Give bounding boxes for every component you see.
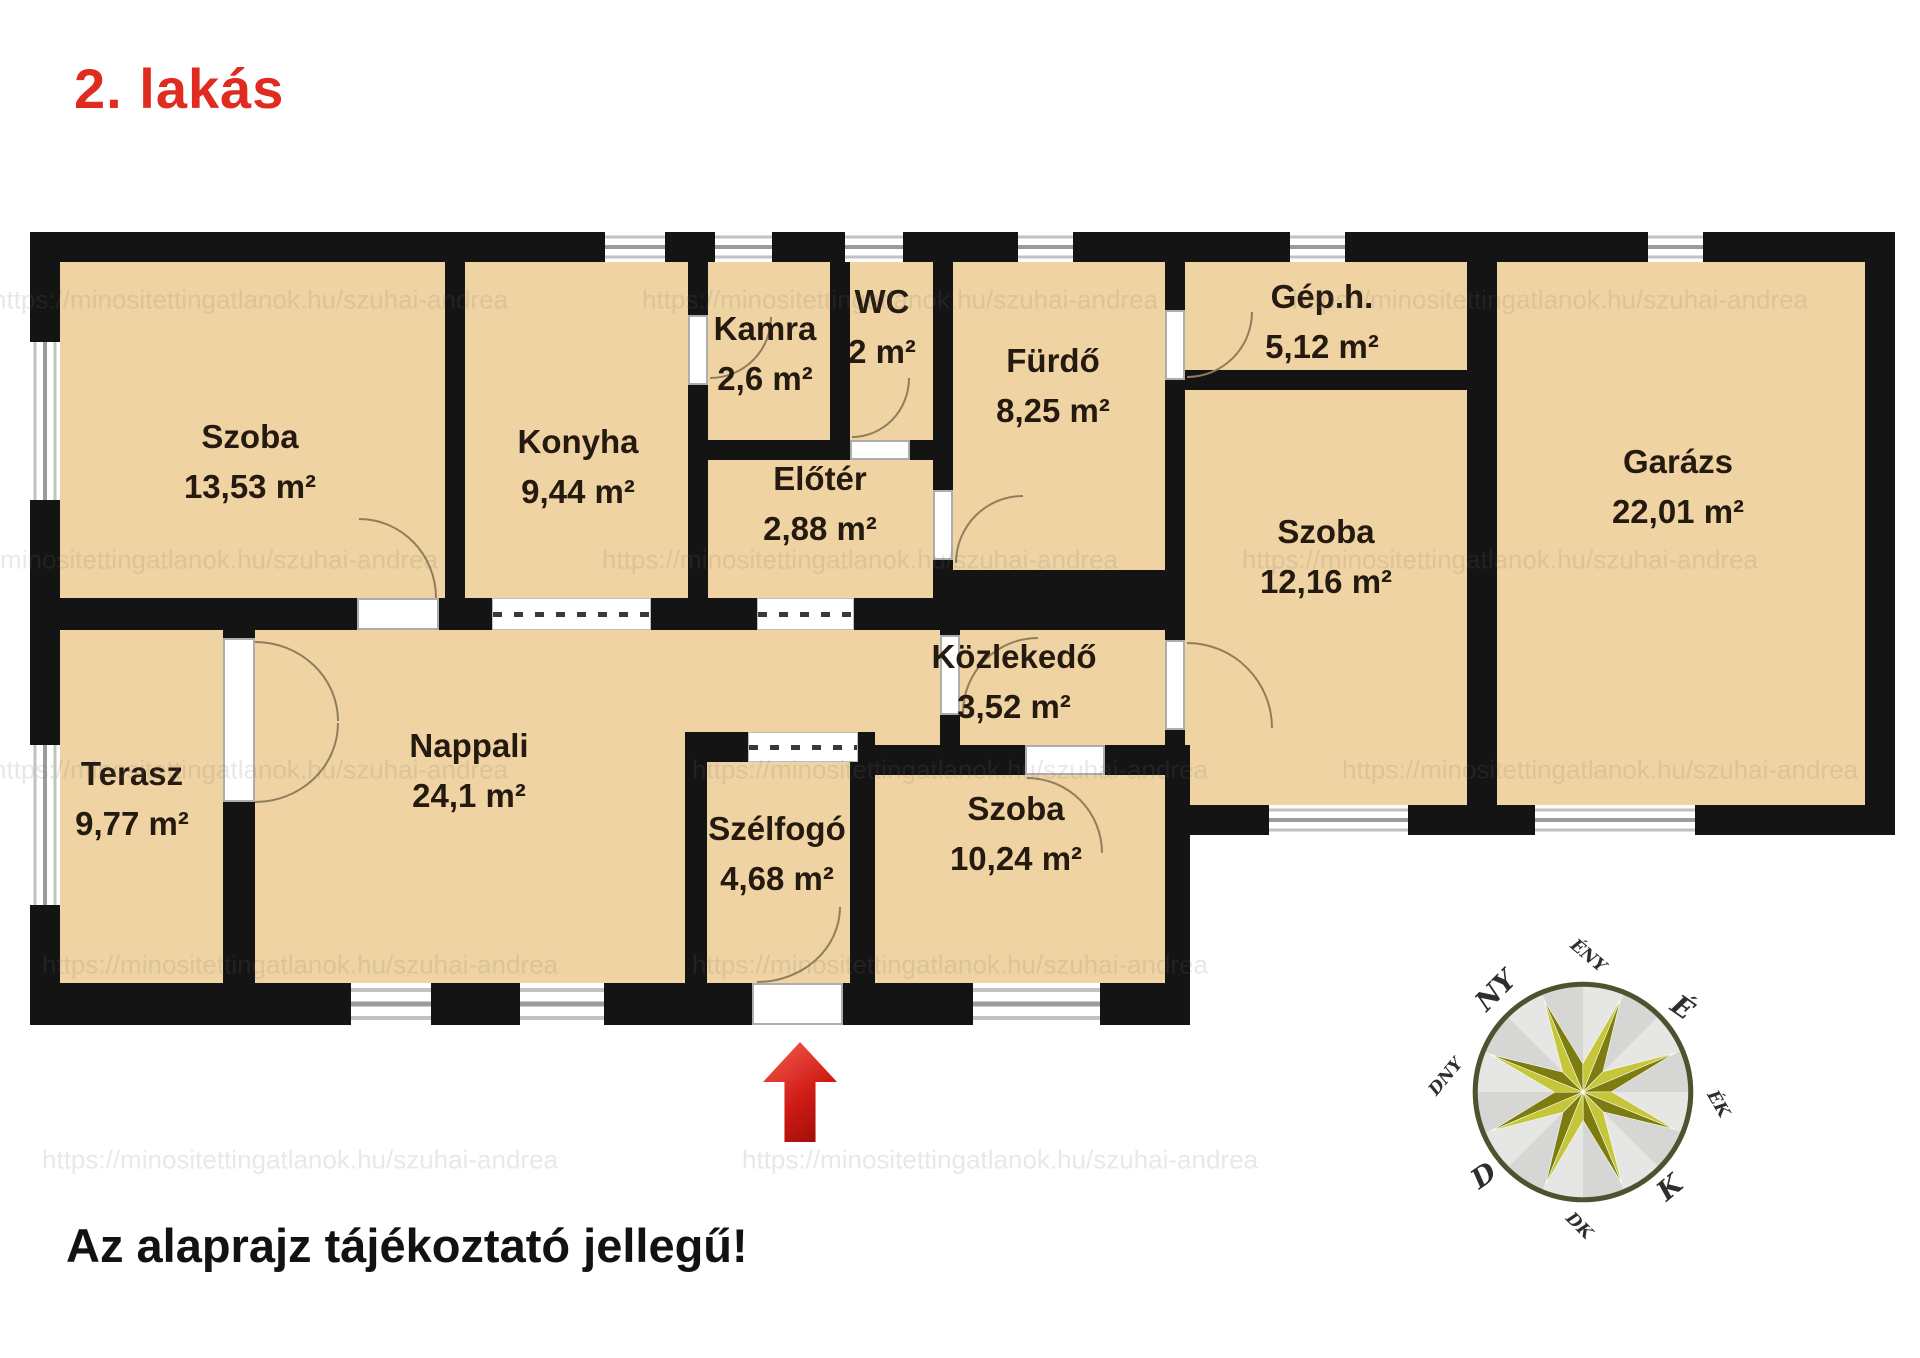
door-frame xyxy=(752,983,843,1025)
room-area: 4,68 m² xyxy=(708,854,846,904)
room-name: Közlekedő xyxy=(931,632,1096,682)
wall xyxy=(1467,262,1497,805)
dashed-window xyxy=(492,598,651,630)
room-name: Garázs xyxy=(1612,437,1744,487)
watermark-text: https://minositettingatlanok.hu/szuhai-a… xyxy=(1292,285,1808,316)
room-name: Fürdő xyxy=(996,336,1110,386)
watermark-text: https://minositettingatlanok.hu/szuhai-a… xyxy=(1342,755,1858,786)
room-name: Előtér xyxy=(763,454,877,504)
door-frame xyxy=(1165,640,1185,730)
watermark-text: https://minositettingatlanok.hu/szuhai-a… xyxy=(0,545,438,576)
room-label-eloter: Előtér2,88 m² xyxy=(763,454,877,554)
window xyxy=(1290,232,1345,262)
window xyxy=(973,983,1100,1025)
room-area: 2 m² xyxy=(848,327,916,377)
window xyxy=(1269,805,1408,835)
watermark-text: https://minositettingatlanok.hu/szuhai-a… xyxy=(742,1145,1258,1176)
watermark-text: https://minositettingatlanok.hu/szuhai-a… xyxy=(692,950,1208,981)
door-frame xyxy=(688,315,708,385)
window xyxy=(605,232,665,262)
room-label-kamra: Kamra2,6 m² xyxy=(714,304,817,404)
room-name: Szélfogó xyxy=(708,804,846,854)
window xyxy=(520,983,604,1025)
watermark-text: https://minositettingatlanok.hu/szuhai-a… xyxy=(1242,545,1758,576)
room-label-szelfogo: Szélfogó4,68 m² xyxy=(708,804,846,904)
room-label-szoba-1: Szoba13,53 m² xyxy=(184,412,316,512)
window xyxy=(1648,232,1703,262)
room-area: 3,52 m² xyxy=(931,682,1096,732)
room-area: 10,24 m² xyxy=(950,834,1082,884)
wall xyxy=(1865,232,1895,835)
watermark-text: https://minositettingatlanok.hu/szuhai-a… xyxy=(42,950,558,981)
window xyxy=(1018,232,1073,262)
watermark-text: https://minositettingatlanok.hu/szuhai-a… xyxy=(642,285,1158,316)
room-area: 8,25 m² xyxy=(996,386,1110,436)
door-frame xyxy=(1165,310,1185,380)
room-name: Szoba xyxy=(950,784,1082,834)
window xyxy=(351,983,431,1025)
entrance-arrow-icon xyxy=(763,1042,837,1142)
watermark-text: https://minositettingatlanok.hu/szuhai-a… xyxy=(692,755,1208,786)
room-area: 22,01 m² xyxy=(1612,487,1744,537)
room-label-kozlekedo: Közlekedő3,52 m² xyxy=(931,632,1096,732)
room-label-szoba-3: Szoba10,24 m² xyxy=(950,784,1082,884)
room-label-garazs: Garázs22,01 m² xyxy=(1612,437,1744,537)
room-area: 2,6 m² xyxy=(714,354,817,404)
watermark-text: https://minositettingatlanok.hu/szuhai-a… xyxy=(0,285,508,316)
footer-note: Az alaprajz tájékoztató jellegű! xyxy=(66,1218,748,1273)
room-area: 13,53 m² xyxy=(184,462,316,512)
room-label-furdo: Fürdő8,25 m² xyxy=(996,336,1110,436)
watermark-text: https://minositettingatlanok.hu/szuhai-a… xyxy=(42,1145,558,1176)
room-area: 5,12 m² xyxy=(1265,322,1379,372)
room-area: 9,44 m² xyxy=(517,467,638,517)
window xyxy=(1535,805,1695,835)
room-name: Konyha xyxy=(517,417,638,467)
window xyxy=(845,232,903,262)
room-name: Szoba xyxy=(184,412,316,462)
dashed-window xyxy=(757,598,854,630)
wall xyxy=(30,232,1895,262)
room-label-konyha: Konyha9,44 m² xyxy=(517,417,638,517)
window xyxy=(715,232,772,262)
floor-plan-page: 2. lakás Szoba13,53 m²Konyha9,44 m²Kamra… xyxy=(0,0,1920,1358)
page-title: 2. lakás xyxy=(74,56,284,121)
door-frame xyxy=(357,598,439,630)
watermark-text: https://minositettingatlanok.hu/szuhai-a… xyxy=(602,545,1118,576)
wall xyxy=(1185,370,1467,390)
room-area: 9,77 m² xyxy=(75,799,189,849)
watermark-text: https://minositettingatlanok.hu/szuhai-a… xyxy=(0,755,508,786)
compass-direction-label: ÉK xyxy=(1702,1087,1733,1121)
wall xyxy=(1165,745,1190,1025)
window xyxy=(30,342,60,500)
